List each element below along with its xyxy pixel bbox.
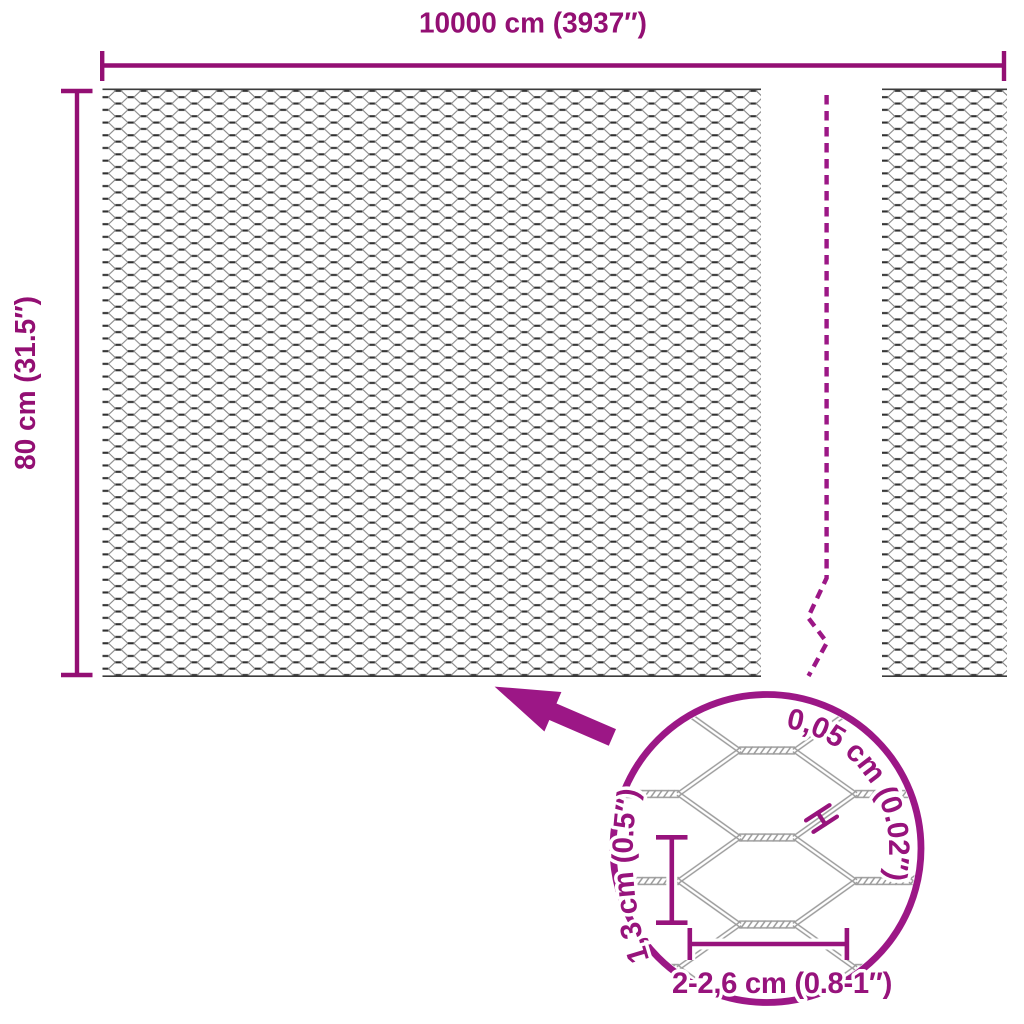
svg-text:10000 cm (3937″): 10000 cm (3937″)	[419, 8, 647, 40]
svg-text:80 cm (31.5″): 80 cm (31.5″)	[10, 296, 42, 470]
svg-text:2-2,6 cm (0.8-1″): 2-2,6 cm (0.8-1″)	[672, 967, 892, 1000]
